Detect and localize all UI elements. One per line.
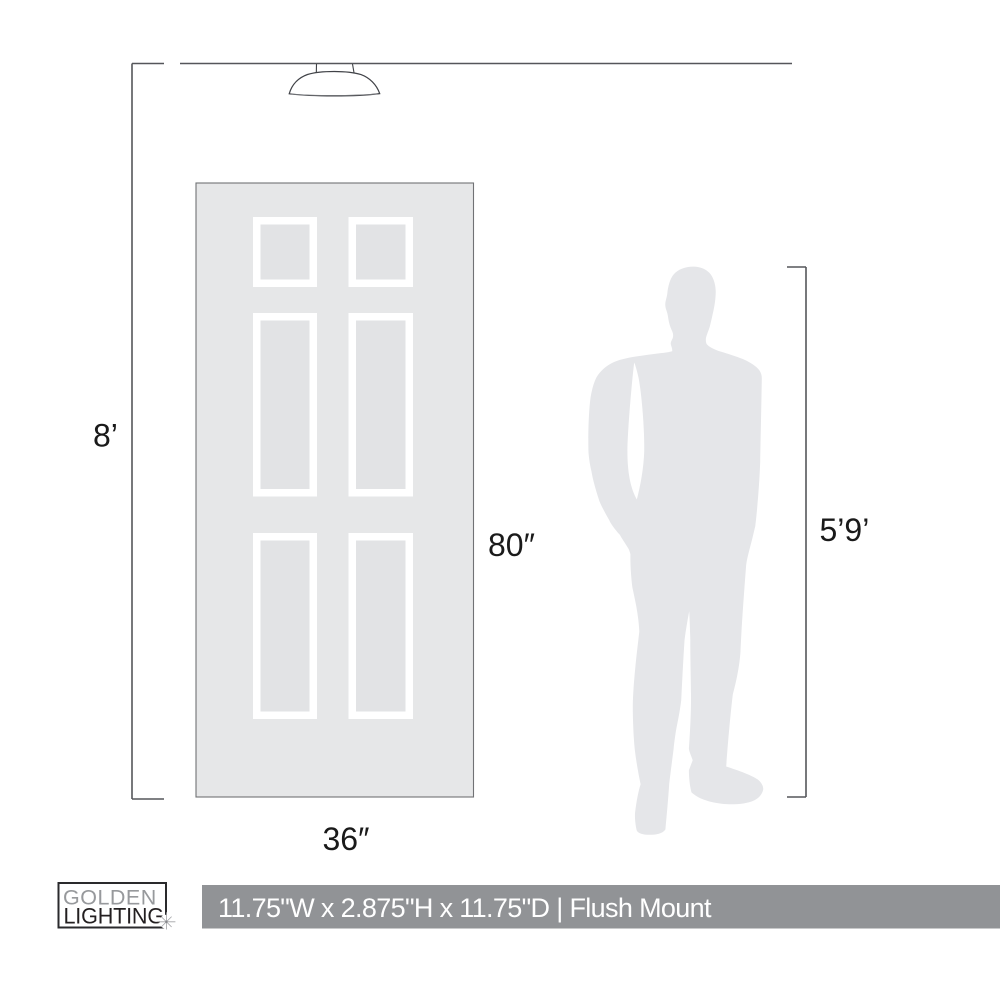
svg-text:11.75"W x 2.875"H x 11.75"D |: 11.75"W x 2.875"H x 11.75"D | Flush Moun… xyxy=(218,893,712,923)
svg-text:80″: 80″ xyxy=(488,527,535,563)
svg-text:5’9’: 5’9’ xyxy=(820,512,870,548)
svg-text:8’: 8’ xyxy=(93,418,118,454)
svg-text:LIGHTING: LIGHTING xyxy=(64,903,164,929)
svg-text:36″: 36″ xyxy=(323,821,370,857)
